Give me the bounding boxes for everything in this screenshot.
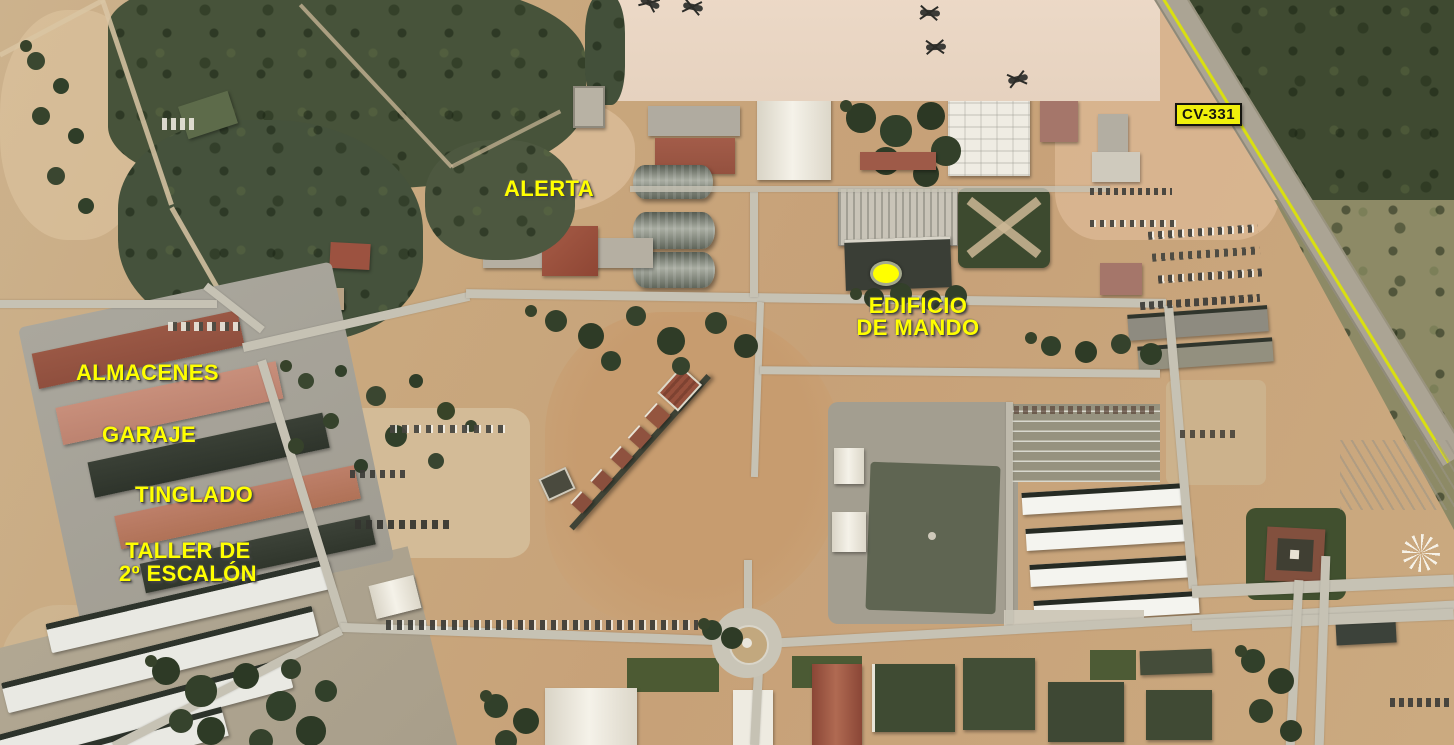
tree-cluster (1025, 332, 1037, 344)
parked-cars-row (1180, 430, 1240, 438)
tree-cluster (20, 40, 32, 52)
dark-roof-building (963, 658, 1035, 730)
label-line: 2º ESCALÓN (119, 561, 257, 586)
courtyard-center (1290, 550, 1299, 559)
tree-cluster (840, 100, 852, 112)
parked-vehicles (162, 118, 196, 130)
label-edificio-de-mando: EDIFICIO DE MANDO (828, 295, 1008, 339)
red-roof-building (1040, 100, 1078, 142)
gate-cross-road (1286, 580, 1304, 745)
long-shed (1137, 337, 1273, 370)
label-taller-2-escalon: TALLER DE 2º ESCALÓN (104, 539, 272, 585)
roundabout (712, 608, 782, 678)
white-building (948, 98, 1030, 176)
road-sign-cv331: CV-331 (1175, 103, 1242, 126)
label-line: TALLER DE (125, 538, 250, 563)
long-shed (1127, 305, 1268, 341)
dark-roof-building (1140, 649, 1213, 675)
white-building (834, 448, 864, 484)
main-road (466, 289, 1166, 308)
white-building (832, 512, 866, 552)
barracks-gray (648, 106, 740, 136)
street (630, 186, 1110, 192)
park-garden (958, 188, 1050, 268)
parked-cars-row (1090, 220, 1176, 227)
satellite-map: ALERTA EDIFICIO DE MANDO ALMACENES GARAJ… (0, 0, 1454, 745)
parked-cars-row (350, 470, 410, 478)
lawn (627, 658, 719, 692)
parked-cars-row (355, 520, 450, 529)
long-building-white (1021, 483, 1187, 515)
parked-cars-row (1390, 698, 1450, 707)
quonset-hangar (633, 165, 713, 199)
tree-cluster (280, 360, 292, 372)
white-roof-building (545, 688, 637, 745)
containers-row (168, 322, 240, 331)
parade-center-dot (928, 532, 936, 540)
tree-cluster (480, 690, 492, 702)
label-tinglado: TINGLADO (135, 484, 253, 506)
parked-cars-row (1158, 268, 1262, 283)
north-road (750, 192, 758, 297)
label-alerta: ALERTA (504, 178, 594, 200)
dark-roof-building (1146, 690, 1212, 740)
tree-cluster (698, 618, 710, 630)
small-compound (573, 86, 605, 128)
long-building-white (1025, 519, 1191, 551)
lot-divider-road (1006, 402, 1013, 624)
gray-building (1092, 152, 1140, 182)
parked-cars-row (1152, 246, 1260, 262)
parked-cars-row (1090, 188, 1172, 195)
dark-roof-building (872, 664, 955, 732)
edificio-de-mando-marker (870, 261, 902, 286)
red-gable-building (812, 664, 862, 745)
parked-cars-row (386, 620, 698, 630)
dark-roof-building (1048, 682, 1124, 742)
helicopter-icon (920, 9, 940, 16)
helicopter-icon (926, 43, 946, 50)
parked-cars-row (390, 425, 510, 433)
dirt-field (545, 312, 845, 624)
white-hangar (757, 98, 831, 180)
long-building-white (1029, 555, 1195, 587)
parked-cars-row (1014, 406, 1158, 414)
pavement-star-ornament (1402, 534, 1440, 572)
rail-lines (1340, 440, 1454, 510)
label-garaje: GARAJE (102, 424, 196, 446)
tree-cluster (1235, 645, 1247, 657)
command-building (844, 236, 952, 291)
label-almacenes: ALMACENES (76, 362, 219, 384)
red-roof-building (1100, 263, 1142, 295)
lawn (1090, 650, 1136, 680)
tree-cluster (145, 655, 157, 667)
courtyard-building (1265, 527, 1326, 584)
main-road (0, 300, 217, 308)
tree-cluster (525, 305, 537, 317)
label-line: DE MANDO (857, 315, 980, 340)
gray-building (1098, 114, 1128, 152)
helicopter-icon (683, 2, 704, 12)
roundabout-center (742, 638, 752, 648)
striped-parking-lot (1012, 404, 1160, 482)
red-roof-building (860, 152, 936, 170)
red-roof-building (329, 242, 370, 270)
helicopter-apron (612, 0, 1160, 101)
